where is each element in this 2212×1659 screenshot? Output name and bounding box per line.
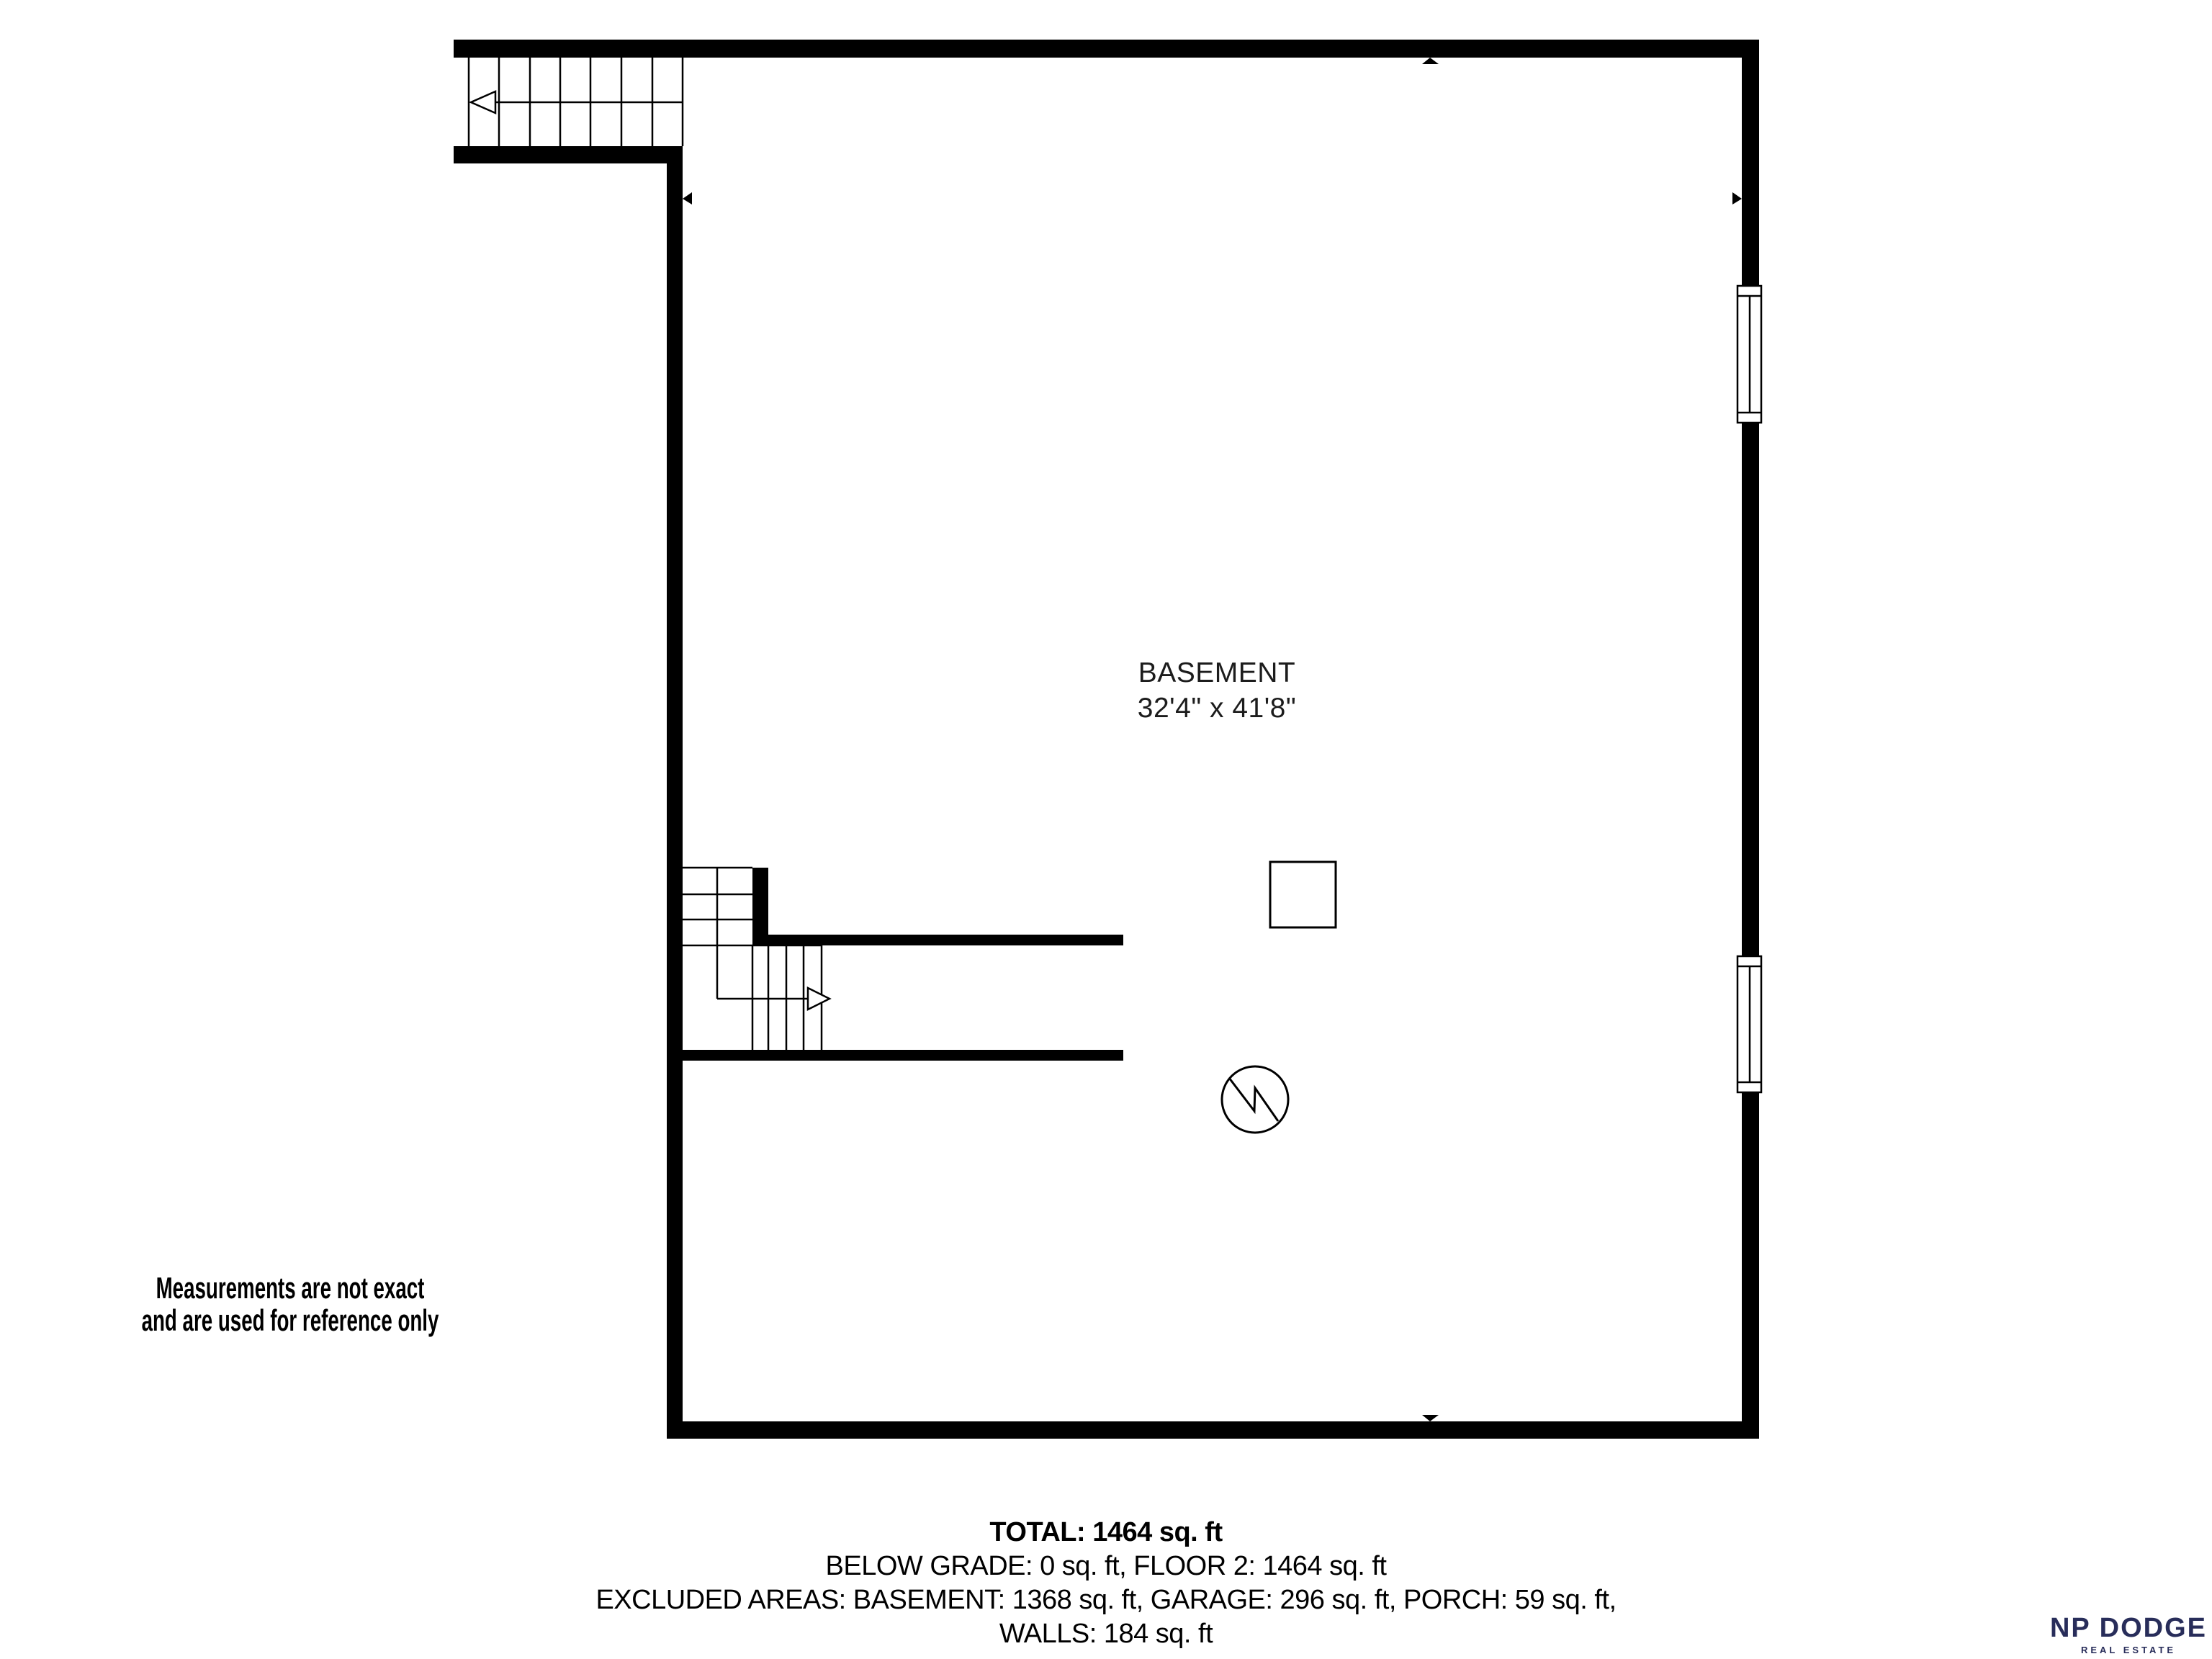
support-post-icon [1270,862,1336,927]
floorplan-drawing [0,0,2212,1659]
wall-markers [683,58,1742,1421]
marker-right-icon [1732,192,1742,204]
left-wall [667,146,683,1439]
room-name: BASEMENT [1001,655,1433,691]
bottom-wall [667,1421,1759,1439]
top-wall [454,40,1759,58]
brand-name: NP DODGE [2047,1613,2210,1643]
upper-staircase-icon [469,58,683,146]
stair-nook-bottom-wall [454,146,683,163]
marker-up-icon [1422,58,1439,64]
brand-tagline: REAL ESTATE [2047,1645,2210,1655]
brand-logo: NP DODGE REAL ESTATE [2047,1613,2210,1655]
summary-below-grade: BELOW GRADE: 0 sq. ft, FLOOR 2: 1464 sq.… [0,1550,2212,1583]
room-label: BASEMENT 32'4" x 41'8" [1001,655,1433,726]
marker-down-icon [1422,1415,1439,1421]
right-wall-lower [1742,1092,1759,1439]
interior-walls [667,868,1123,1061]
floorplan-page: BASEMENT 32'4" x 41'8" Measurements are … [0,0,2212,1659]
area-summary: TOTAL: 1464 sq. ft BELOW GRADE: 0 sq. ft… [0,1516,2212,1651]
disclaimer-line-1: Measurements are not exact [138,1272,442,1304]
interior-wall-upper [752,935,1123,945]
summary-walls: WALLS: 184 sq. ft [0,1617,2212,1651]
summary-excluded-areas: EXCLUDED AREAS: BASEMENT: 1368 sq. ft, G… [0,1583,2212,1617]
interior-wall-lower [667,1050,1123,1061]
marker-left-icon [683,192,692,204]
right-wall-middle [1742,423,1759,956]
disclaimer-line-2: and are used for reference only [138,1304,442,1336]
disclaimer-note: Measurements are not exact and are used … [138,1272,442,1336]
left-arrowhead-icon [471,91,495,113]
window-icon-upper [1737,286,1761,423]
window-icon-lower [1737,956,1761,1092]
right-wall-upper [1742,40,1759,286]
right-arrowhead-icon [808,988,829,1010]
summary-total: TOTAL: 1464 sq. ft [0,1516,2212,1550]
interior-wall-stub [752,868,768,945]
water-heater-icon [1222,1066,1288,1133]
exterior-walls [454,40,1759,1439]
room-dimensions: 32'4" x 41'8" [1001,691,1433,726]
